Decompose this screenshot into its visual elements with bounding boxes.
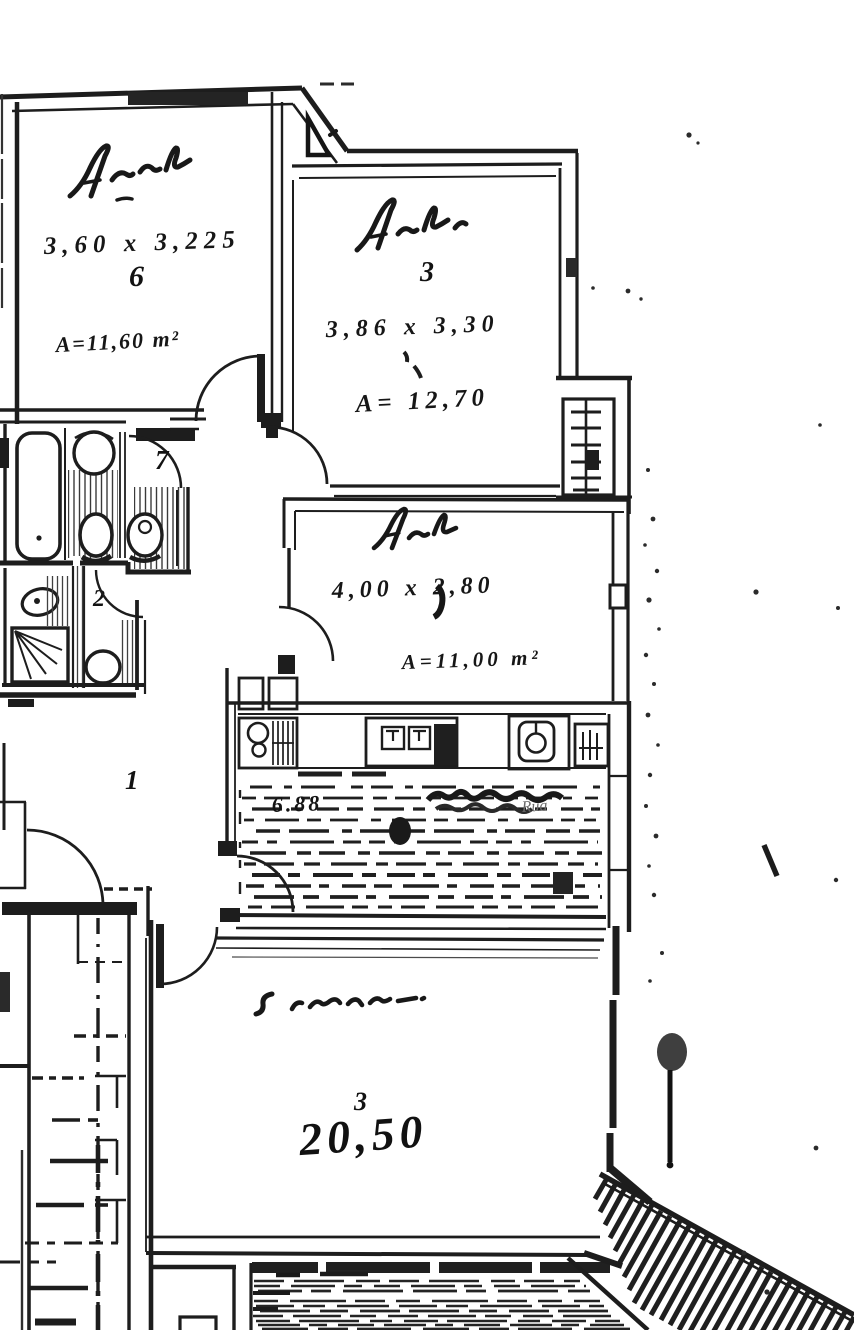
svg-text:20,50: 20,50 bbox=[296, 1105, 429, 1165]
svg-text:3: 3 bbox=[419, 257, 434, 288]
svg-text:Rua: Rua bbox=[520, 797, 548, 816]
svg-text:2: 2 bbox=[92, 586, 105, 612]
svg-text:A=11,00 m²: A=11,00 m² bbox=[399, 645, 542, 674]
svg-text:7: 7 bbox=[155, 445, 170, 475]
svg-text:6: 6 bbox=[129, 260, 144, 293]
svg-text:6.88: 6.88 bbox=[271, 790, 322, 817]
svg-text:1: 1 bbox=[125, 765, 139, 795]
